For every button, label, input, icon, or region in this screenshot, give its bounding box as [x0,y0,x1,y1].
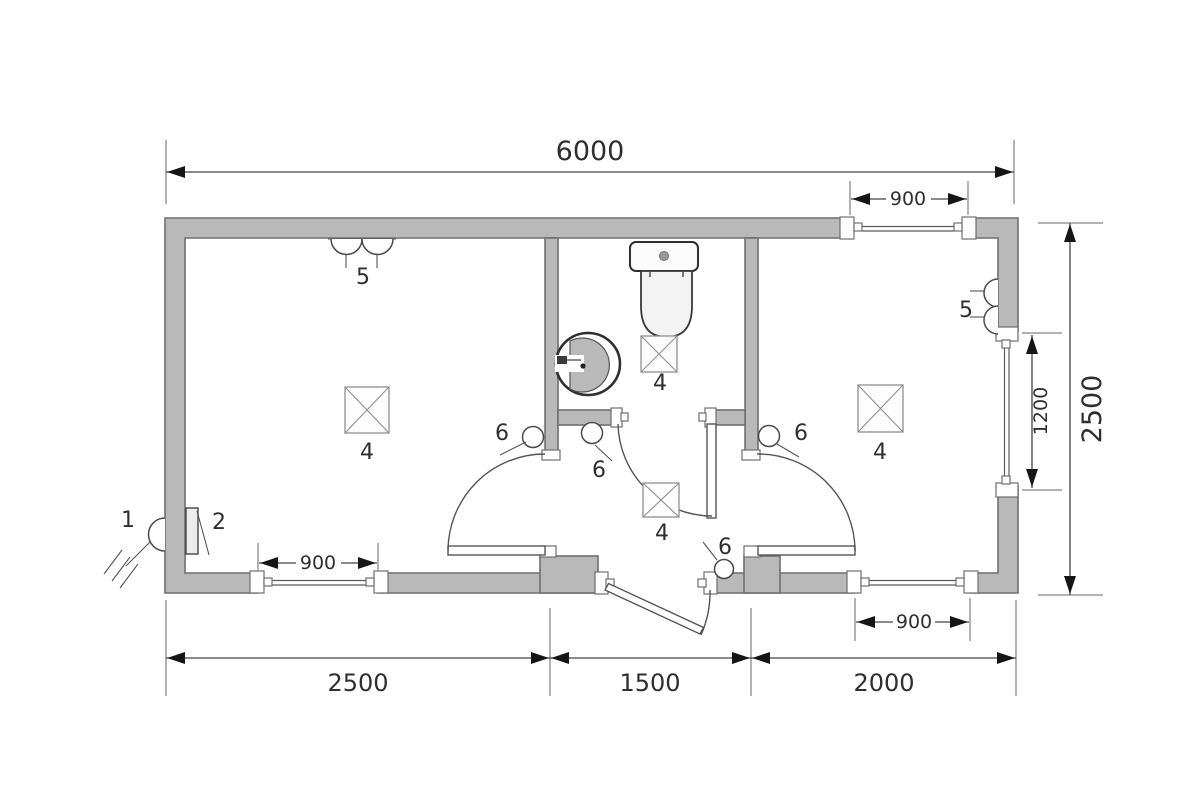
opening-window-bottom-left [258,570,378,595]
dim-right-room-label: 2000 [853,669,914,697]
toilet [630,242,698,337]
opening-window-top-right [850,216,966,240]
wall-lamp-top-icon [328,239,396,268]
floor-drain-right-room [858,385,903,432]
floor-drain-left-room [345,387,389,433]
callout-drain-bathroom: 4 [653,371,667,396]
door-device-bathroom-icon [582,423,613,462]
entry-pier-left [540,556,598,593]
jamb-caps-bathroom-doorway [611,408,716,427]
dim-window-top-right-label: 900 [890,188,926,210]
callout-device-left-door: 6 [495,421,509,446]
floor-plan-svg: 6000 2500 2500 1500 2000 900 [0,0,1200,800]
opening-window-bottom-right [855,570,970,595]
entry-pier-right [744,556,780,593]
dim-overall-width-label: 6000 [556,136,625,167]
callout-drain-right-room: 4 [873,440,887,465]
dim-window-bottom-right-label: 900 [896,611,932,633]
callout-device-right-door: 6 [794,421,808,446]
dim-overall-depth-label: 2500 [1077,375,1108,444]
door-left-room [448,454,545,555]
dim-overall-width: 6000 [166,136,1014,204]
opening-window-side [996,332,1020,486]
bathroom-wall-right-segment [712,410,745,425]
callout-outdoor-light: 1 [121,508,135,533]
jamb-cap-right-doorway-top [742,450,760,460]
callout-device-entrance-door: 6 [718,535,732,560]
floor-drain-bathroom [641,336,677,372]
dim-window-top-right: 900 [850,181,968,215]
callout-lamp-right: 5 [959,298,973,323]
sink [555,333,620,395]
interior-wall-left [545,238,558,454]
dim-bottom-rooms: 2500 1500 2000 [166,600,1016,697]
dim-window-bottom-right: 900 [855,598,970,641]
sink-faucet-icon [557,356,567,364]
interior-wall-right [745,238,758,454]
floor-plan-page: 6000 2500 2500 1500 2000 900 [0,0,1200,800]
callout-drain-hall: 4 [655,521,669,546]
floor-drain-hall [643,483,679,517]
door-right-room [757,454,855,555]
callout-switchboard: 2 [212,510,226,535]
dim-window-bottom-left: 900 [258,543,378,574]
dim-window-side-height-label: 1200 [1030,387,1052,435]
wall-lamp-right-icon [970,279,998,334]
dim-window-side-height: 1200 [1022,333,1062,490]
jamb-cap-left-doorway-top [542,450,560,460]
callout-drain-left-room: 4 [360,440,374,465]
callout-lamp-top: 5 [356,265,370,290]
dim-left-room-label: 2500 [327,669,388,697]
switchboard-icon [186,508,209,555]
callout-device-bathroom-door: 6 [592,458,606,483]
dim-middle-label: 1500 [619,669,680,697]
door-device-right-icon [759,426,800,458]
